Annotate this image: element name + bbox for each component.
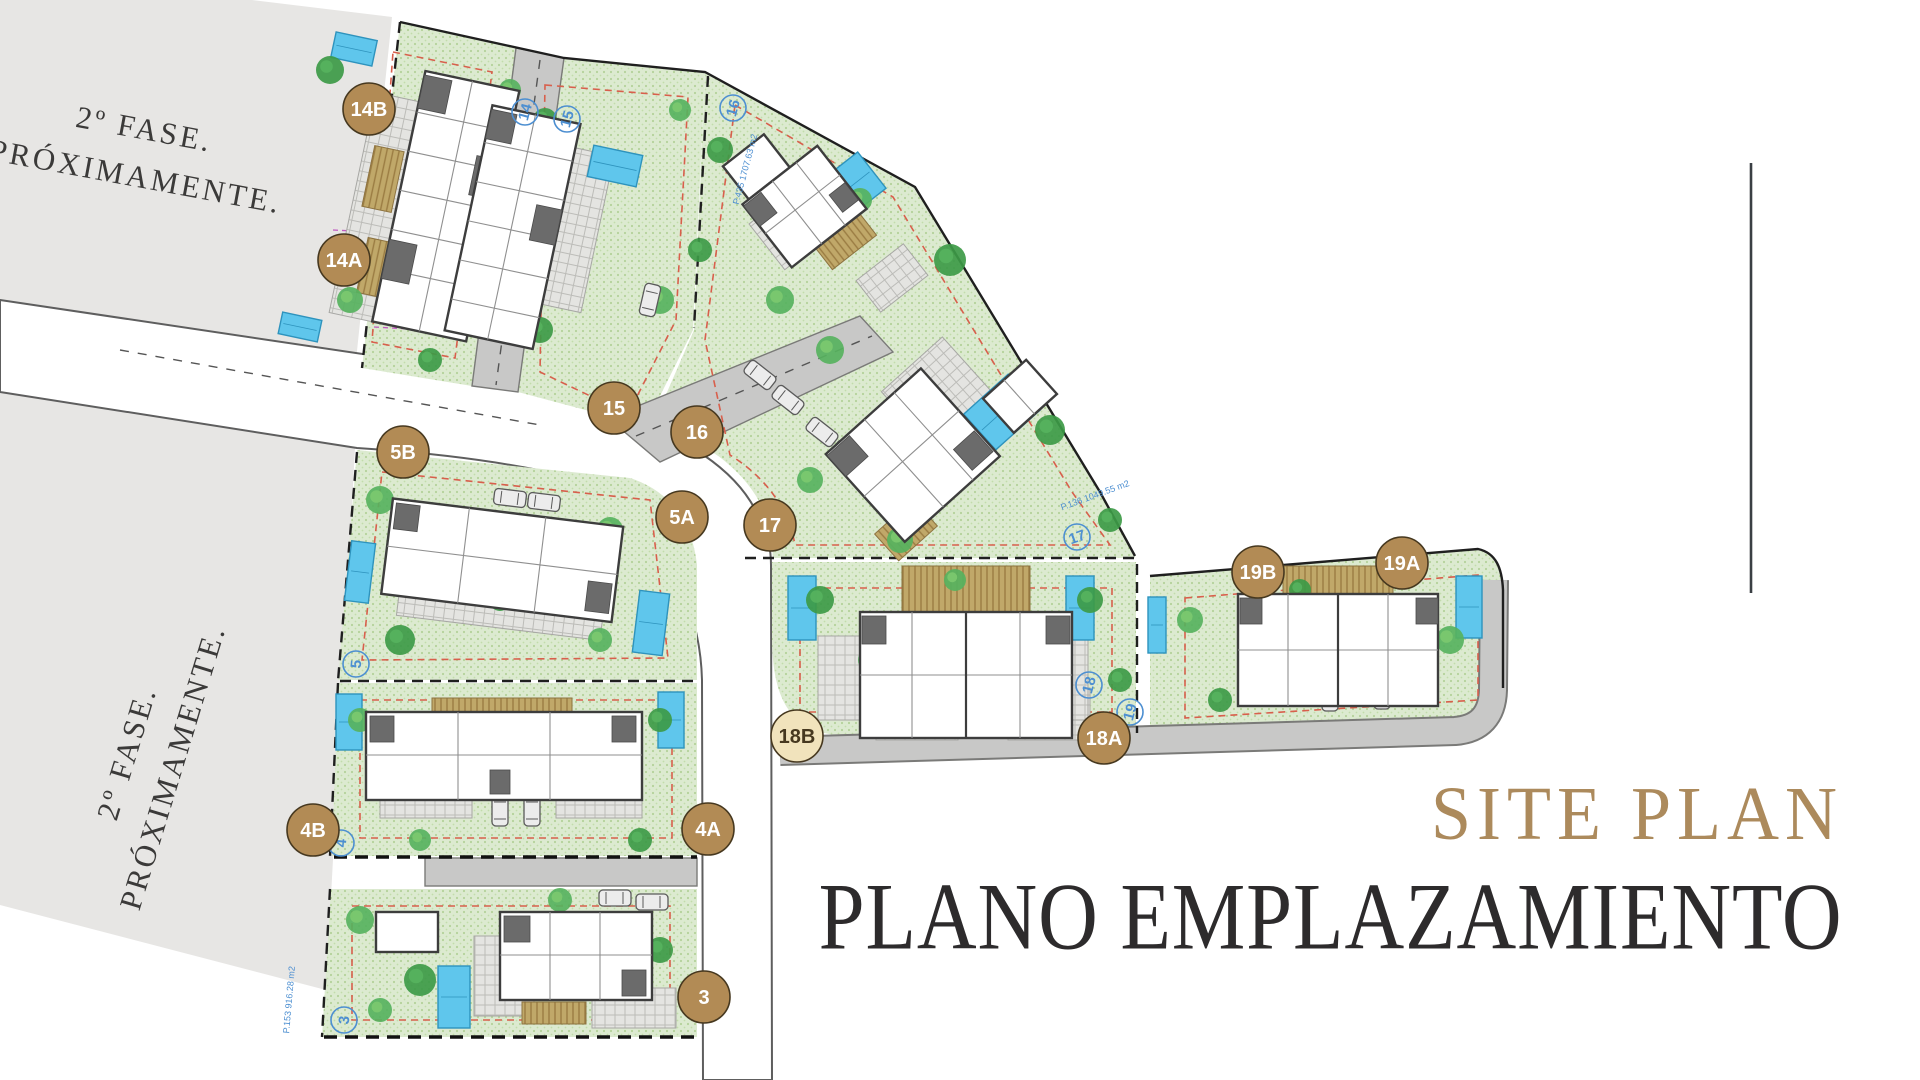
site-plan-page: 141516171819543P.435 1707.63 m2P.136 104… xyxy=(0,0,1920,1080)
svg-text:4A: 4A xyxy=(695,819,721,841)
tree xyxy=(337,287,363,313)
svg-text:16: 16 xyxy=(686,422,708,444)
wood-deck xyxy=(522,1002,586,1024)
swimming-pool xyxy=(438,966,470,1028)
svg-text:19B: 19B xyxy=(1240,562,1277,584)
svg-text:3: 3 xyxy=(698,987,709,1009)
tree xyxy=(588,628,612,652)
tree xyxy=(366,486,394,514)
parked-car xyxy=(493,488,527,508)
svg-text:14B: 14B xyxy=(351,99,388,121)
tree xyxy=(628,828,652,852)
plot-marker-5B[interactable]: 5B xyxy=(377,426,429,478)
svg-text:15: 15 xyxy=(603,398,625,420)
tree xyxy=(1108,668,1132,692)
tree xyxy=(1077,587,1103,613)
plot-marker-18B[interactable]: 18B xyxy=(771,710,823,762)
plot-marker-4B[interactable]: 4B xyxy=(287,804,339,856)
road-plot4-drive xyxy=(425,858,697,886)
tree xyxy=(316,56,344,84)
plot-marker-14B[interactable]: 14B xyxy=(343,83,395,135)
title-plano-emplazamiento: PLANO EMPLAZAMIENTO xyxy=(819,862,1843,972)
tree xyxy=(368,998,392,1022)
svg-text:17: 17 xyxy=(759,515,781,537)
tree xyxy=(548,888,572,912)
svg-text:4B: 4B xyxy=(300,820,326,842)
tree xyxy=(418,348,442,372)
svg-text:14A: 14A xyxy=(326,250,363,272)
tree xyxy=(766,286,794,314)
parked-car xyxy=(527,492,561,512)
plot-marker-19A[interactable]: 19A xyxy=(1376,537,1428,589)
tree xyxy=(1098,508,1122,532)
building-pair-18 xyxy=(860,612,1072,738)
title-site-plan: SITE PLAN xyxy=(1431,770,1843,858)
plot-marker-3[interactable]: 3 xyxy=(678,971,730,1023)
svg-text:5: 5 xyxy=(348,659,366,669)
tree xyxy=(1436,626,1464,654)
tree xyxy=(648,708,672,732)
swimming-pool xyxy=(1148,597,1166,653)
plot-marker-5A[interactable]: 5A xyxy=(656,491,708,543)
tree xyxy=(409,829,431,851)
svg-text:19A: 19A xyxy=(1384,553,1421,575)
tree xyxy=(707,137,733,163)
plot-marker-4A[interactable]: 4A xyxy=(682,803,734,855)
parked-car xyxy=(599,890,631,906)
svg-text:3: 3 xyxy=(336,1015,354,1025)
paved-patio xyxy=(818,636,862,720)
plot-marker-15[interactable]: 15 xyxy=(588,382,640,434)
svg-text:5B: 5B xyxy=(390,442,416,464)
tree xyxy=(385,625,415,655)
tree xyxy=(1177,607,1203,633)
tree xyxy=(1208,688,1232,712)
tree xyxy=(688,238,712,262)
plot-marker-17[interactable]: 17 xyxy=(744,499,796,551)
tree xyxy=(806,586,834,614)
svg-text:19: 19 xyxy=(1120,702,1141,723)
plot-marker-19B[interactable]: 19B xyxy=(1232,546,1284,598)
tree xyxy=(944,569,966,591)
parked-car xyxy=(636,894,668,910)
tree xyxy=(934,244,966,276)
tree xyxy=(404,964,436,996)
plot-marker-14A[interactable]: 14A xyxy=(318,234,370,286)
swimming-pool xyxy=(1456,576,1482,638)
wood-deck xyxy=(902,566,1030,612)
svg-text:18A: 18A xyxy=(1086,728,1123,750)
tree xyxy=(346,906,374,934)
building-pair-19 xyxy=(1238,594,1438,706)
tree xyxy=(669,99,691,121)
tree xyxy=(797,467,823,493)
building-row-4 xyxy=(366,712,642,800)
svg-text:5A: 5A xyxy=(669,507,695,529)
tree xyxy=(816,336,844,364)
plot-marker-18A[interactable]: 18A xyxy=(1078,712,1130,764)
tree xyxy=(1035,415,1065,445)
plot-marker-16[interactable]: 16 xyxy=(671,406,723,458)
svg-text:18B: 18B xyxy=(779,726,816,748)
